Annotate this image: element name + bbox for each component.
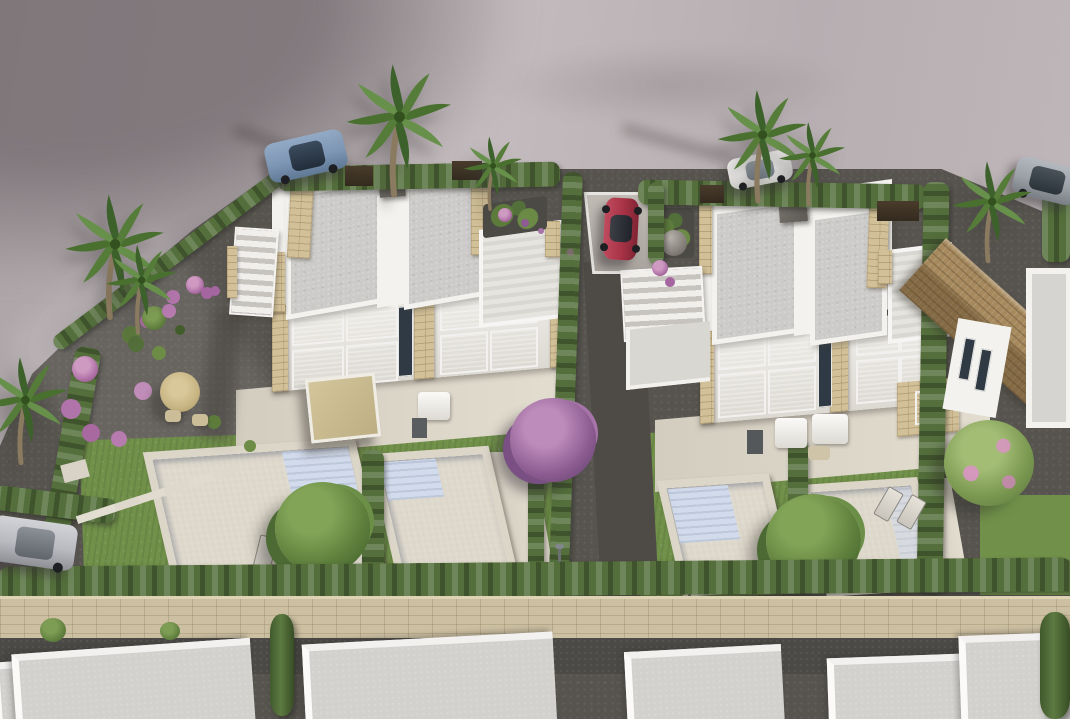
villa-right-window <box>718 370 766 418</box>
shrub-bottom-left-2 <box>160 622 180 640</box>
pool-3-steps <box>668 485 740 543</box>
straw-parasol <box>160 372 200 412</box>
cypress-bottom-right <box>1040 612 1070 719</box>
car-red <box>602 197 639 261</box>
bottom-house-roof <box>624 644 785 719</box>
villa-left-window <box>440 331 488 375</box>
gate-top-right-2 <box>877 201 919 221</box>
villa-right-window <box>856 357 900 405</box>
tiled-house-window-slit <box>974 348 992 391</box>
bottom-house-roof <box>827 654 965 719</box>
villa-left-terrace-stone <box>545 221 560 257</box>
hedge-driveway-right <box>648 182 664 264</box>
patio-pouf <box>808 446 830 460</box>
palm-tree <box>92 232 184 347</box>
palm-tree <box>766 110 852 218</box>
tiled-house-window-slit <box>958 337 976 380</box>
patio-sofa-right-2 <box>775 418 807 448</box>
palm-tree <box>0 336 76 486</box>
cypress-bottom-lane <box>270 614 294 716</box>
aerial-render-scene: Bird's-eye 3D rendering of a new-build r… <box>0 0 1070 719</box>
villa-right-terrace-stone <box>878 250 892 284</box>
patio-sofa-left <box>418 392 450 420</box>
tiled-house-annex-roof <box>1032 274 1066 422</box>
flower-bush-driveway <box>652 260 668 276</box>
villa-left-window <box>346 303 398 342</box>
car-silver-cabin <box>14 526 56 561</box>
flowering-tree-right <box>944 420 1034 506</box>
palm-tree <box>326 48 462 213</box>
villa-right-roof-spine <box>794 219 812 336</box>
car-red-cabin <box>609 214 632 242</box>
garden-chair <box>192 414 208 426</box>
garden-chair <box>165 410 181 422</box>
villa-right-entry-canopy <box>626 321 710 390</box>
palm-tree <box>936 146 1040 278</box>
patio-sofa-right <box>812 414 848 444</box>
shrub-bottom-left <box>40 618 66 642</box>
pool-2-steps <box>380 459 445 501</box>
flowering-tree-driveway <box>510 398 596 482</box>
decor-stone-ball <box>661 230 687 256</box>
villa-left-window <box>490 327 538 371</box>
bottom-house-roof <box>302 631 558 719</box>
palm-tree <box>452 126 528 221</box>
tiled-house-annex <box>1026 268 1070 428</box>
villa-right-window <box>768 366 816 414</box>
patio-storage-box-right <box>747 430 763 454</box>
tree-over-pool-1 <box>275 482 370 574</box>
patio-pergola <box>305 373 381 444</box>
villa-left-stairs-wall <box>227 246 237 298</box>
garden-lamp <box>558 548 561 562</box>
patio-storage-box-left <box>412 418 427 438</box>
flower-bush <box>186 276 204 294</box>
villa-left-entry-door <box>398 306 413 377</box>
